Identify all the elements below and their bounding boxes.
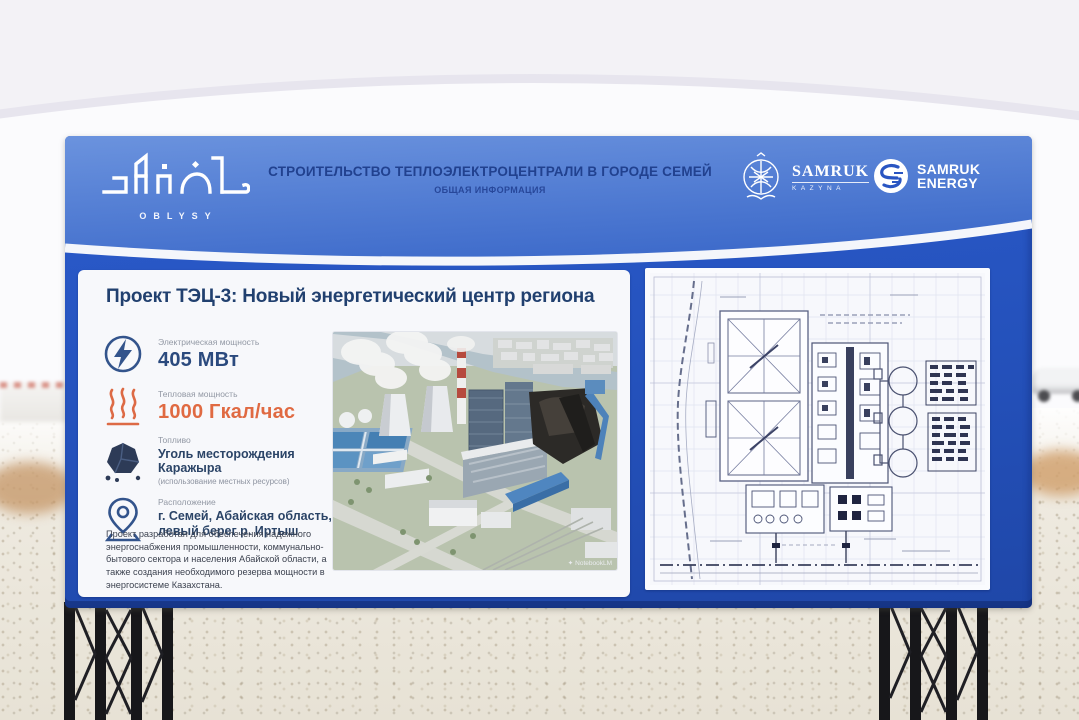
truss-leg-left — [64, 602, 176, 720]
stat-note: (использование местных ресурсов) — [158, 477, 338, 486]
notebooklm-label: NotebookLM — [575, 560, 612, 567]
project-heading: Проект ТЭЦ-3: Новый энергетический центр… — [106, 286, 611, 308]
board-title-block: СТРОИТЕЛЬСТВО ТЕПЛОЭЛЕКТРОЦЕНТРАЛИ В ГОР… — [255, 164, 725, 195]
notebooklm-icon: ✦ — [568, 559, 573, 567]
project-info-panel: Проект ТЭЦ-3: Новый энергетический центр… — [78, 270, 630, 597]
site-plan-panel — [645, 268, 990, 590]
coal-icon — [101, 437, 145, 483]
board-subtitle: ОБЩАЯ ИНФОРМАЦИЯ — [255, 185, 725, 195]
parked-car — [1032, 368, 1079, 402]
heat-icon — [101, 385, 145, 427]
project-stats: Электрическая мощность 405 МВт — [100, 326, 335, 542]
barrier-tape — [0, 382, 66, 388]
stat-fuel: Топливо Уголь месторождения Каражыра (ис… — [100, 435, 335, 486]
stat-value: 1000 Гкал/час — [158, 401, 295, 424]
power-plant-render: ✦ NotebookLM — [333, 332, 617, 570]
samruk-kazyna-wordmark: SAMRUK — [792, 163, 869, 183]
construction-site-photo: OBLYSY СТРОИТЕЛЬСТВО ТЕПЛОЭЛЕКТРОЦЕНТРАЛ… — [0, 0, 1079, 720]
samruk-energy-wordmark-1: SAMRUK — [917, 162, 980, 176]
stat-electric-power: Электрическая мощность 405 МВт — [100, 332, 335, 376]
truss-leg-right — [879, 598, 991, 720]
project-description: Проект разработан для обеспечения надежн… — [106, 528, 338, 591]
samruk-energy-logo: SAMRUK ENERGY — [871, 156, 980, 196]
samruk-kazyna-emblem-icon — [737, 152, 785, 202]
tent-canopy — [0, 0, 1079, 150]
distant-structures — [0, 386, 70, 422]
board-title: СТРОИТЕЛЬСТВО ТЕПЛОЭЛЕКТРОЦЕНТРАЛИ В ГОР… — [255, 164, 725, 179]
samruk-kazyna-sub: KAZYNA — [792, 185, 869, 192]
lightning-icon — [101, 332, 145, 376]
render-watermark: ✦ NotebookLM — [568, 559, 612, 567]
abai-oblysy-logo: OBLYSY — [95, 148, 255, 221]
stat-label: Расположение — [158, 497, 338, 507]
samruk-energy-wordmark-2: ENERGY — [917, 176, 980, 190]
samruk-energy-emblem-icon — [871, 156, 911, 196]
power-plant-render-image — [333, 332, 617, 570]
stat-value: 405 МВт — [158, 349, 259, 372]
stat-value: Уголь месторождения Каражыра — [158, 447, 338, 476]
abai-calligraphy-icon — [100, 148, 250, 204]
samruk-kazyna-logo: SAMRUK KAZYNA — [737, 152, 869, 202]
information-billboard: OBLYSY СТРОИТЕЛЬСТВО ТЕПЛОЭЛЕКТРОЦЕНТРАЛ… — [65, 136, 1032, 608]
stat-label: Электрическая мощность — [158, 337, 259, 347]
stat-label: Топливо — [158, 435, 338, 445]
stat-label: Тепловая мощность — [158, 389, 295, 399]
site-plan-drawing — [650, 273, 985, 585]
stat-heat-power: Тепловая мощность 1000 Гкал/час — [100, 385, 335, 427]
abai-oblysy-label: OBLYSY — [95, 211, 255, 221]
